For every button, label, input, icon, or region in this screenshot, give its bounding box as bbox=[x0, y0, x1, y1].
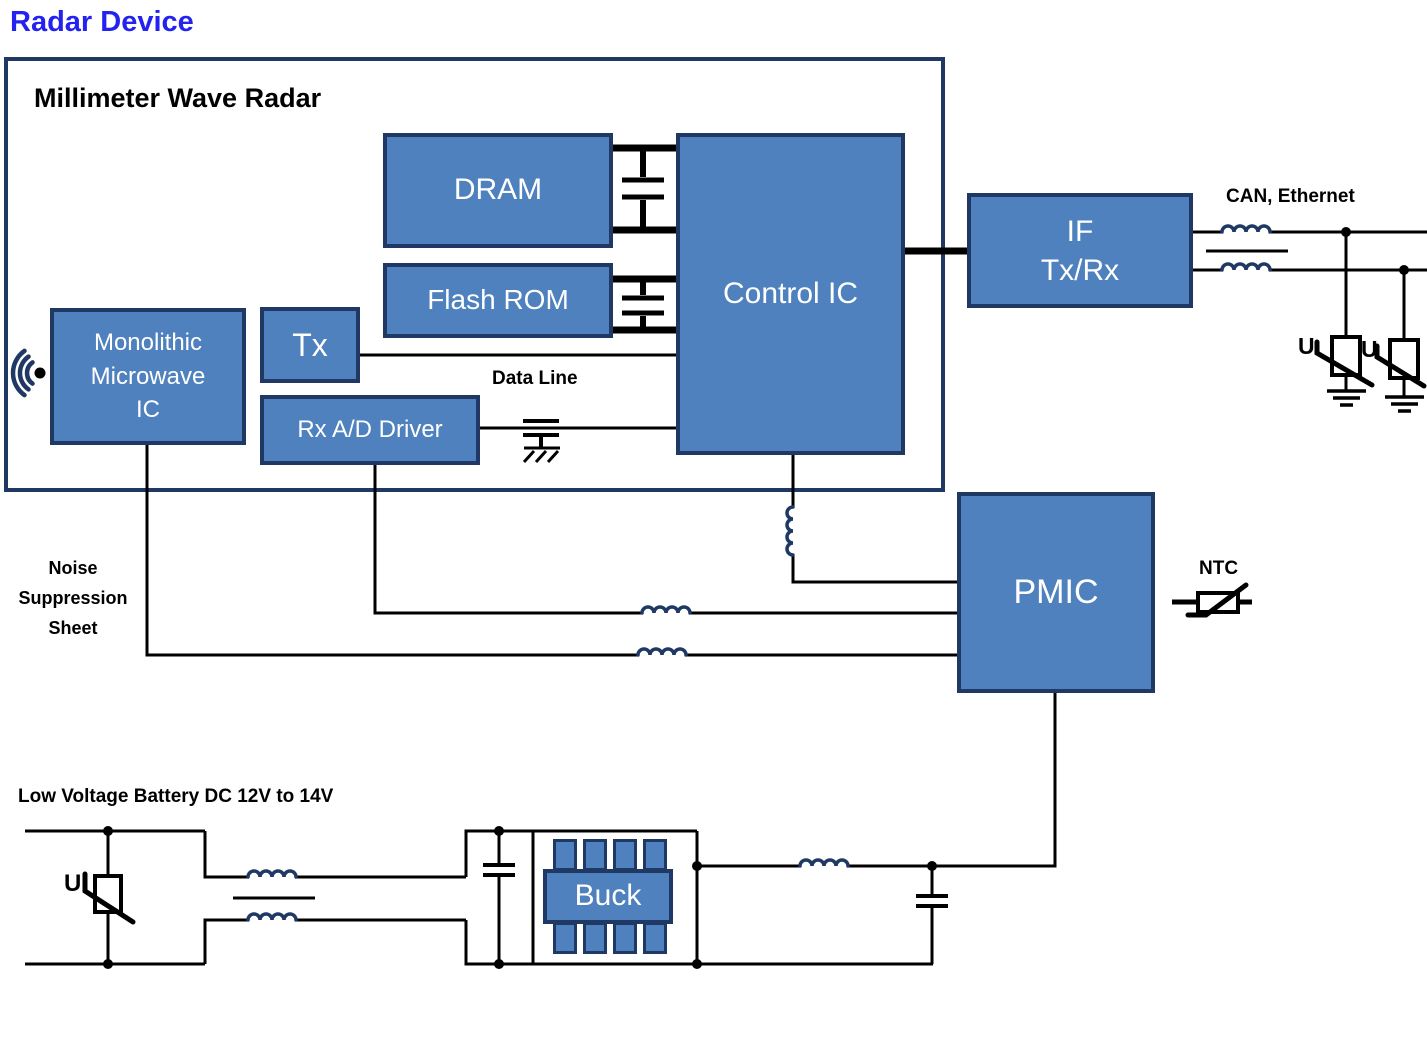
capacitor-icon bbox=[622, 276, 664, 333]
mmic-block: Monolithic Microwave IC bbox=[50, 308, 246, 445]
tx-label: Tx bbox=[292, 327, 328, 364]
if-txrx-block: IF Tx/Rx bbox=[967, 193, 1193, 308]
page-title: Radar Device bbox=[10, 6, 194, 39]
noise-label-line1: Noise bbox=[8, 553, 138, 583]
radar-device-diagram: Radar Device Millimeter Wave Radar bbox=[0, 0, 1427, 1060]
ntc-label: NTC bbox=[1199, 558, 1238, 580]
inductor-icon bbox=[1222, 226, 1270, 232]
varistor-u-label: U bbox=[64, 870, 81, 898]
buck-pin bbox=[613, 839, 637, 871]
varistor-u-label: U bbox=[1361, 336, 1378, 363]
inductor-icon bbox=[638, 649, 686, 655]
thermistor-icon bbox=[1172, 585, 1252, 615]
inductor-icon bbox=[787, 507, 793, 555]
dram-block: DRAM bbox=[383, 133, 613, 248]
tx-block: Tx bbox=[260, 307, 360, 383]
flash-rom-label: Flash ROM bbox=[427, 284, 569, 316]
junction-dot bbox=[927, 861, 937, 871]
junction-dot bbox=[494, 826, 504, 836]
pmic-label: PMIC bbox=[1014, 573, 1099, 612]
ground-icon bbox=[1327, 391, 1366, 405]
if-label-line2: Tx/Rx bbox=[1041, 251, 1119, 290]
control-ic-block: Control IC bbox=[676, 133, 905, 455]
battery-label: Low Voltage Battery DC 12V to 14V bbox=[18, 786, 333, 808]
data-line-label: Data Line bbox=[492, 368, 578, 390]
mmic-label-line2: Microwave bbox=[91, 360, 206, 394]
noise-label-line3: Sheet bbox=[8, 613, 138, 643]
junction-dot bbox=[692, 861, 702, 871]
inductor-icon bbox=[1222, 264, 1270, 270]
capacitor-icon bbox=[916, 896, 948, 906]
ground-icon bbox=[1385, 397, 1424, 411]
mmic-label-line3: IC bbox=[136, 393, 160, 427]
inductor-icon bbox=[248, 871, 296, 877]
capacitor-icon bbox=[622, 145, 664, 233]
capacitor-icon bbox=[483, 865, 515, 875]
flash-rom-block: Flash ROM bbox=[383, 263, 613, 338]
junction-dot bbox=[692, 959, 702, 969]
junction-dot bbox=[103, 959, 113, 969]
junction-dot bbox=[1341, 227, 1351, 237]
noise-suppression-sheet-label: Noise Suppression Sheet bbox=[8, 553, 138, 643]
inductor-icon bbox=[248, 914, 296, 920]
buck-pin bbox=[583, 839, 607, 871]
can-ethernet-label: CAN, Ethernet bbox=[1226, 186, 1355, 208]
control-ic-label: Control IC bbox=[723, 277, 858, 312]
buck-pin bbox=[553, 839, 577, 871]
junction-dot bbox=[494, 959, 504, 969]
inductor-icon bbox=[642, 607, 690, 613]
varistor-u-label: U bbox=[1298, 333, 1315, 360]
mmic-label-line1: Monolithic bbox=[94, 326, 202, 360]
rx-ad-driver-label: Rx A/D Driver bbox=[297, 416, 442, 444]
buck-pin bbox=[613, 922, 637, 954]
junction-dot bbox=[103, 826, 113, 836]
chassis-ground-icon bbox=[524, 448, 560, 462]
inductor-icon bbox=[800, 860, 848, 866]
pmic-block: PMIC bbox=[957, 492, 1155, 693]
radar-wave-icon bbox=[13, 351, 45, 395]
capacitor-icon bbox=[523, 421, 559, 448]
rx-ad-driver-block: Rx A/D Driver bbox=[260, 395, 480, 465]
if-label-line1: IF bbox=[1067, 212, 1094, 251]
buck-pin bbox=[553, 922, 577, 954]
buck-pin bbox=[643, 839, 667, 871]
varistor-icon bbox=[1377, 340, 1424, 386]
noise-label-line2: Suppression bbox=[8, 583, 138, 613]
junction-dot bbox=[1399, 265, 1409, 275]
buck-label: Buck bbox=[575, 879, 642, 914]
buck-pin bbox=[643, 922, 667, 954]
dram-label: DRAM bbox=[454, 173, 542, 208]
buck-block: Buck bbox=[543, 869, 673, 924]
buck-pin bbox=[583, 922, 607, 954]
